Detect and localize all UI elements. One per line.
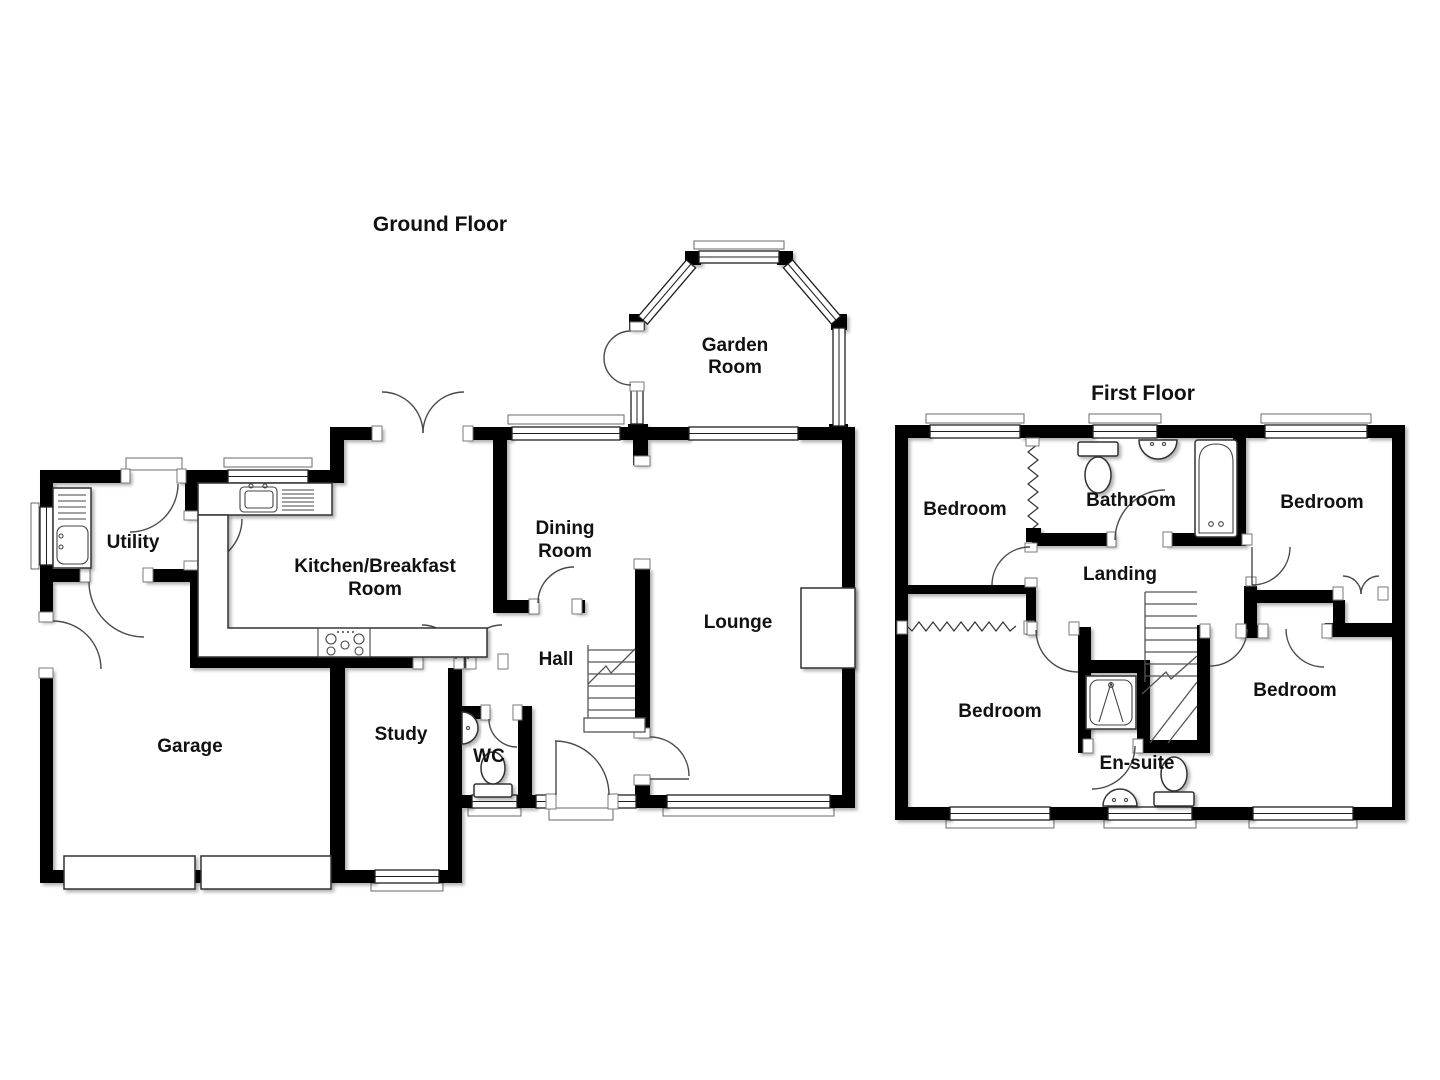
utility-back-threshold — [126, 458, 182, 470]
kitchen-french-doors — [372, 392, 473, 441]
kitchen-window — [228, 470, 308, 483]
room-label-lounge: Lounge — [704, 612, 773, 633]
room-label-landing: Landing — [1083, 564, 1157, 585]
first-floor-plan: First Floor Bedroom Bathroom Bedroom Lan… — [895, 382, 1405, 828]
room-label-bedroom-bl: Bedroom — [958, 701, 1041, 722]
room-label-garage: Garage — [157, 736, 222, 757]
utility-back-door — [121, 469, 186, 532]
floorplan-page: Ground Floor Garden Room Dining Room Kit… — [0, 0, 1440, 1080]
room-label-kitchen-2: Room — [348, 579, 402, 600]
floorplan-drawing: Ground Floor Garden Room Dining Room Kit… — [0, 0, 1440, 1080]
bedroom-br-door-right — [1258, 624, 1332, 667]
bathroom-window — [1093, 425, 1157, 438]
bathroom-toilet — [1078, 442, 1118, 493]
first-wardrobes — [897, 438, 1039, 634]
room-label-ensuite: En-suite — [1100, 753, 1175, 774]
room-label-garden-room: Garden — [702, 335, 769, 356]
room-label-bedroom-tr: Bedroom — [1280, 492, 1363, 513]
bedroom-tr-door — [1242, 534, 1290, 586]
garden-room-window-topright — [783, 260, 840, 324]
room-label-bedroom-tl: Bedroom — [923, 499, 1006, 520]
utility-window — [40, 507, 53, 565]
lounge-window — [667, 795, 830, 808]
room-label-study: Study — [375, 724, 428, 745]
utility-garage-door — [80, 568, 153, 637]
garden-room-french-doors — [604, 322, 644, 391]
garden-room-window-right — [833, 328, 845, 426]
ensuite-window — [1108, 807, 1192, 820]
dining-lounge-opening — [634, 456, 650, 569]
room-label-utility: Utility — [107, 532, 160, 553]
room-label-wc: WC — [473, 746, 505, 767]
bedroom-tl-door — [992, 543, 1037, 587]
bedroom-tr-window — [1265, 425, 1367, 438]
bedroom-bl-window — [950, 807, 1050, 820]
room-label-hall: Hall — [539, 649, 574, 670]
utility-sink — [53, 488, 91, 568]
study-window — [375, 870, 439, 883]
bedroom-bl-door — [1027, 622, 1079, 672]
bedroom-br-window — [1253, 807, 1353, 820]
garage-door-left — [64, 856, 195, 889]
dining-room-window — [512, 427, 620, 440]
garage-door-right — [201, 856, 331, 889]
bedroom-tl-window — [930, 425, 1020, 438]
cupboard-doors — [1333, 576, 1388, 600]
fireplace — [801, 588, 855, 668]
first-floor-title: First Floor — [1091, 382, 1195, 405]
dining-room-door — [529, 567, 582, 614]
room-label-garden-room-2: Room — [708, 357, 762, 378]
wardrobe-horizontal — [908, 622, 1016, 631]
room-label-dining-room: Dining — [535, 518, 594, 539]
ensuite-basin — [1103, 789, 1137, 806]
garden-room-window-topleft — [638, 260, 695, 324]
garden-room-window-top — [699, 251, 779, 263]
front-door — [546, 741, 618, 809]
shower-cubicle — [1086, 676, 1136, 729]
kitchen-worktop-sink — [198, 483, 332, 515]
lounge-door — [634, 728, 689, 785]
lounge-garden-window — [689, 427, 798, 440]
bathroom-basin — [1139, 440, 1177, 459]
room-label-dining-room-2: Room — [538, 541, 592, 562]
first-staircase — [1142, 592, 1197, 743]
garage-side-door — [39, 612, 101, 678]
wc-door — [481, 705, 522, 747]
room-label-kitchen: Kitchen/Breakfast — [294, 556, 456, 577]
room-label-bedroom-br: Bedroom — [1253, 680, 1336, 701]
bath — [1195, 440, 1237, 537]
ground-floor-plan: Ground Floor Garden Room Dining Room Kit… — [31, 213, 855, 891]
room-label-bathroom: Bathroom — [1086, 490, 1176, 511]
front-door-threshold — [549, 808, 613, 820]
ground-floor-title: Ground Floor — [373, 213, 507, 236]
wardrobe-vertical — [1028, 440, 1038, 528]
garden-room-post — [628, 424, 648, 439]
kitchen-worktop-hob — [198, 515, 487, 657]
